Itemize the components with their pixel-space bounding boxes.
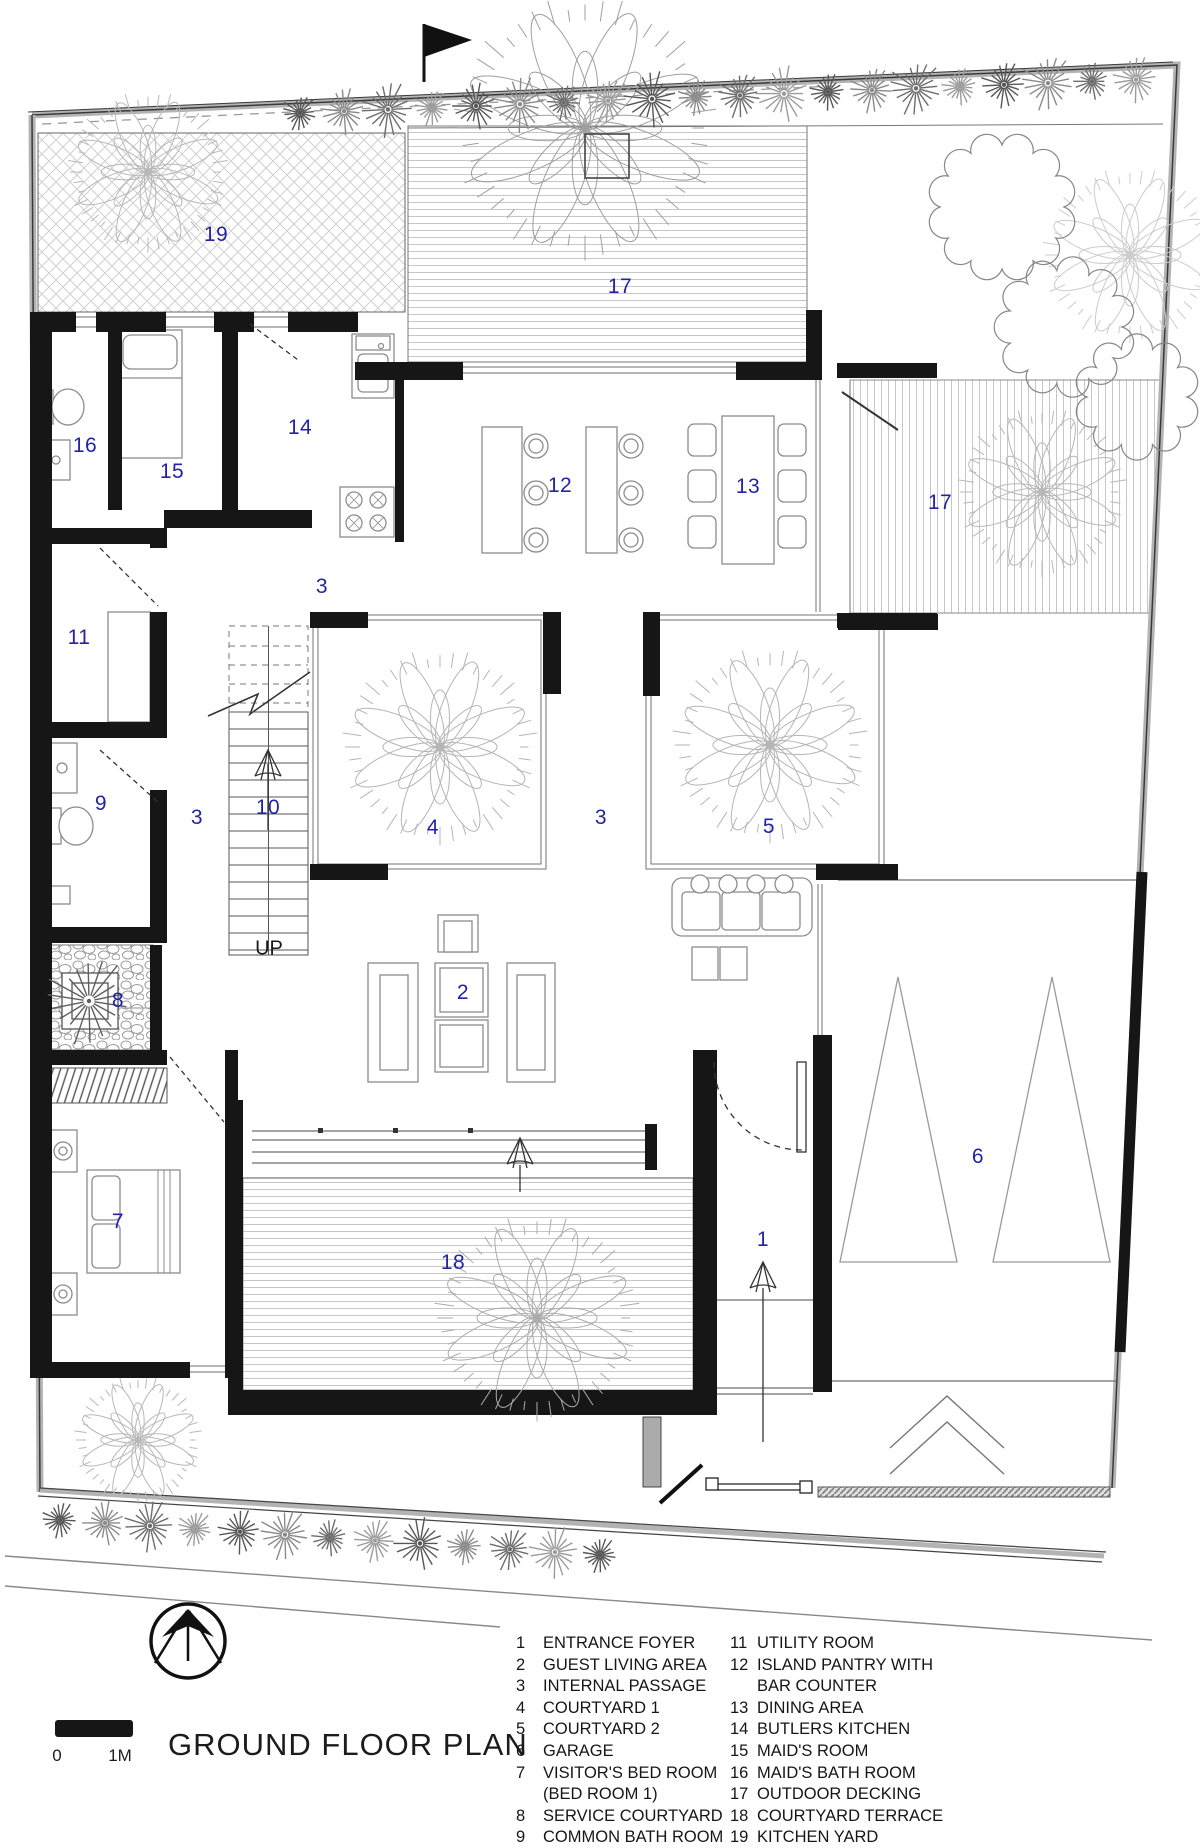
legend-label: ENTRANCE FOYER [543, 1633, 695, 1655]
page-title: GROUND FLOOR PLAN [168, 1727, 528, 1763]
room-label-3: 3 [316, 575, 328, 599]
legend-item-13: 13DINING AREA [730, 1698, 970, 1720]
legend-number: 2 [516, 1655, 543, 1677]
legend-label: DINING AREA [757, 1698, 863, 1720]
legend-label: KITCHEN YARD [757, 1827, 878, 1848]
legend-item-1: 1ENTRANCE FOYER [516, 1633, 731, 1655]
legend-number: 17 [730, 1784, 757, 1806]
scale-zero-label: 0 [42, 1746, 72, 1766]
legend-item-8: 8SERVICE COURTYARD [516, 1806, 731, 1828]
room-label-7: 7 [112, 1210, 124, 1234]
legend-label: MAID'S ROOM [757, 1741, 868, 1763]
legend-label: GUEST LIVING AREA [543, 1655, 707, 1677]
legend-item-11: 11UTILITY ROOM [730, 1633, 970, 1655]
flag-icon [424, 24, 472, 82]
room-label-1: 1 [757, 1228, 769, 1252]
legend-column-2: 11UTILITY ROOM12ISLAND PANTRY WITH BAR C… [730, 1633, 970, 1848]
room-label-3: 3 [595, 806, 607, 830]
legend-number: 8 [516, 1806, 543, 1828]
legend-number: 12 [730, 1655, 757, 1677]
legend-label: MAID'S BATH ROOM [757, 1763, 916, 1785]
room-label-6: 6 [972, 1145, 984, 1169]
legend-item-4: 4COURTYARD 1 [516, 1698, 731, 1720]
legend-item-15: 15MAID'S ROOM [730, 1741, 970, 1763]
legend-number: 16 [730, 1763, 757, 1785]
legend-item-9: 9COMMON BATH ROOM [516, 1827, 731, 1848]
room-label-10: 10 [256, 796, 280, 820]
legend-label: OUTDOOR DECKING [757, 1784, 921, 1806]
room-label-16: 16 [73, 434, 97, 458]
legend-number: 19 [730, 1827, 757, 1848]
room-label-9: 9 [95, 792, 107, 816]
scale-bar [55, 1720, 133, 1737]
legend-label: VISITOR'S BED ROOM (BED ROOM 1) [543, 1763, 717, 1806]
stair-up-label: UP [255, 938, 283, 961]
legend-label: COURTYARD 2 [543, 1719, 660, 1741]
legend-item-6: 6GARAGE [516, 1741, 731, 1763]
legend-item-19: 19KITCHEN YARD [730, 1827, 970, 1848]
floor-finishes [38, 126, 1162, 1390]
legend-item-18: 18COURTYARD TERRACE [730, 1806, 970, 1828]
legend-item-14: 14BUTLERS KITCHEN [730, 1719, 970, 1741]
legend-number: 11 [730, 1633, 757, 1655]
north-arrow-icon [151, 1604, 225, 1678]
legend-item-5: 5COURTYARD 2 [516, 1719, 731, 1741]
legend-label: BUTLERS KITCHEN [757, 1719, 910, 1741]
legend-label: ISLAND PANTRY WITH BAR COUNTER [757, 1655, 933, 1698]
legend-label: UTILITY ROOM [757, 1633, 874, 1655]
legend-item-7: 7VISITOR'S BED ROOM (BED ROOM 1) [516, 1763, 731, 1806]
room-label-17: 17 [928, 491, 952, 515]
legend-number: 9 [516, 1827, 543, 1848]
legend-label: COMMON BATH ROOM [543, 1827, 723, 1848]
legend-number: 1 [516, 1633, 543, 1655]
legend-label: GARAGE [543, 1741, 614, 1763]
legend-label: SERVICE COURTYARD [543, 1806, 723, 1828]
room-label-3: 3 [191, 806, 203, 830]
room-label-14: 14 [288, 416, 312, 440]
staircase [208, 626, 310, 955]
room-label-2: 2 [457, 981, 469, 1005]
legend-label: COURTYARD 1 [543, 1698, 660, 1720]
legend-label: COURTYARD TERRACE [757, 1806, 943, 1828]
room-label-18: 18 [441, 1251, 465, 1275]
legend-item-12: 12ISLAND PANTRY WITH BAR COUNTER [730, 1655, 970, 1698]
legend-label: INTERNAL PASSAGE [543, 1676, 706, 1698]
scale-1m-label: 1M [100, 1746, 140, 1766]
legend-number: 15 [730, 1741, 757, 1763]
legend-number: 13 [730, 1698, 757, 1720]
legend-number: 7 [516, 1763, 543, 1785]
legend-number: 4 [516, 1698, 543, 1720]
floor-plan-sheet: 191716151412131731110343598271816 UP GRO… [0, 0, 1200, 1848]
legend-number: 5 [516, 1719, 543, 1741]
legend-item-2: 2GUEST LIVING AREA [516, 1655, 731, 1677]
room-label-8: 8 [112, 989, 124, 1013]
room-label-17: 17 [608, 275, 632, 299]
room-label-19: 19 [204, 223, 228, 247]
floor-plan-drawing [0, 0, 1200, 1848]
legend-item-16: 16MAID'S BATH ROOM [730, 1763, 970, 1785]
legend-number: 14 [730, 1719, 757, 1741]
legend-item-3: 3INTERNAL PASSAGE [516, 1676, 731, 1698]
legend-number: 3 [516, 1676, 543, 1698]
room-label-11: 11 [68, 626, 91, 650]
legend-number: 18 [730, 1806, 757, 1828]
room-label-15: 15 [160, 460, 184, 484]
room-label-13: 13 [736, 475, 760, 499]
room-label-4: 4 [427, 816, 439, 840]
room-label-12: 12 [548, 474, 572, 498]
legend-item-17: 17OUTDOOR DECKING [730, 1784, 970, 1806]
legend-number: 6 [516, 1741, 543, 1763]
legend-column-1: 1ENTRANCE FOYER2GUEST LIVING AREA3INTERN… [516, 1633, 731, 1848]
room-label-5: 5 [763, 815, 775, 839]
